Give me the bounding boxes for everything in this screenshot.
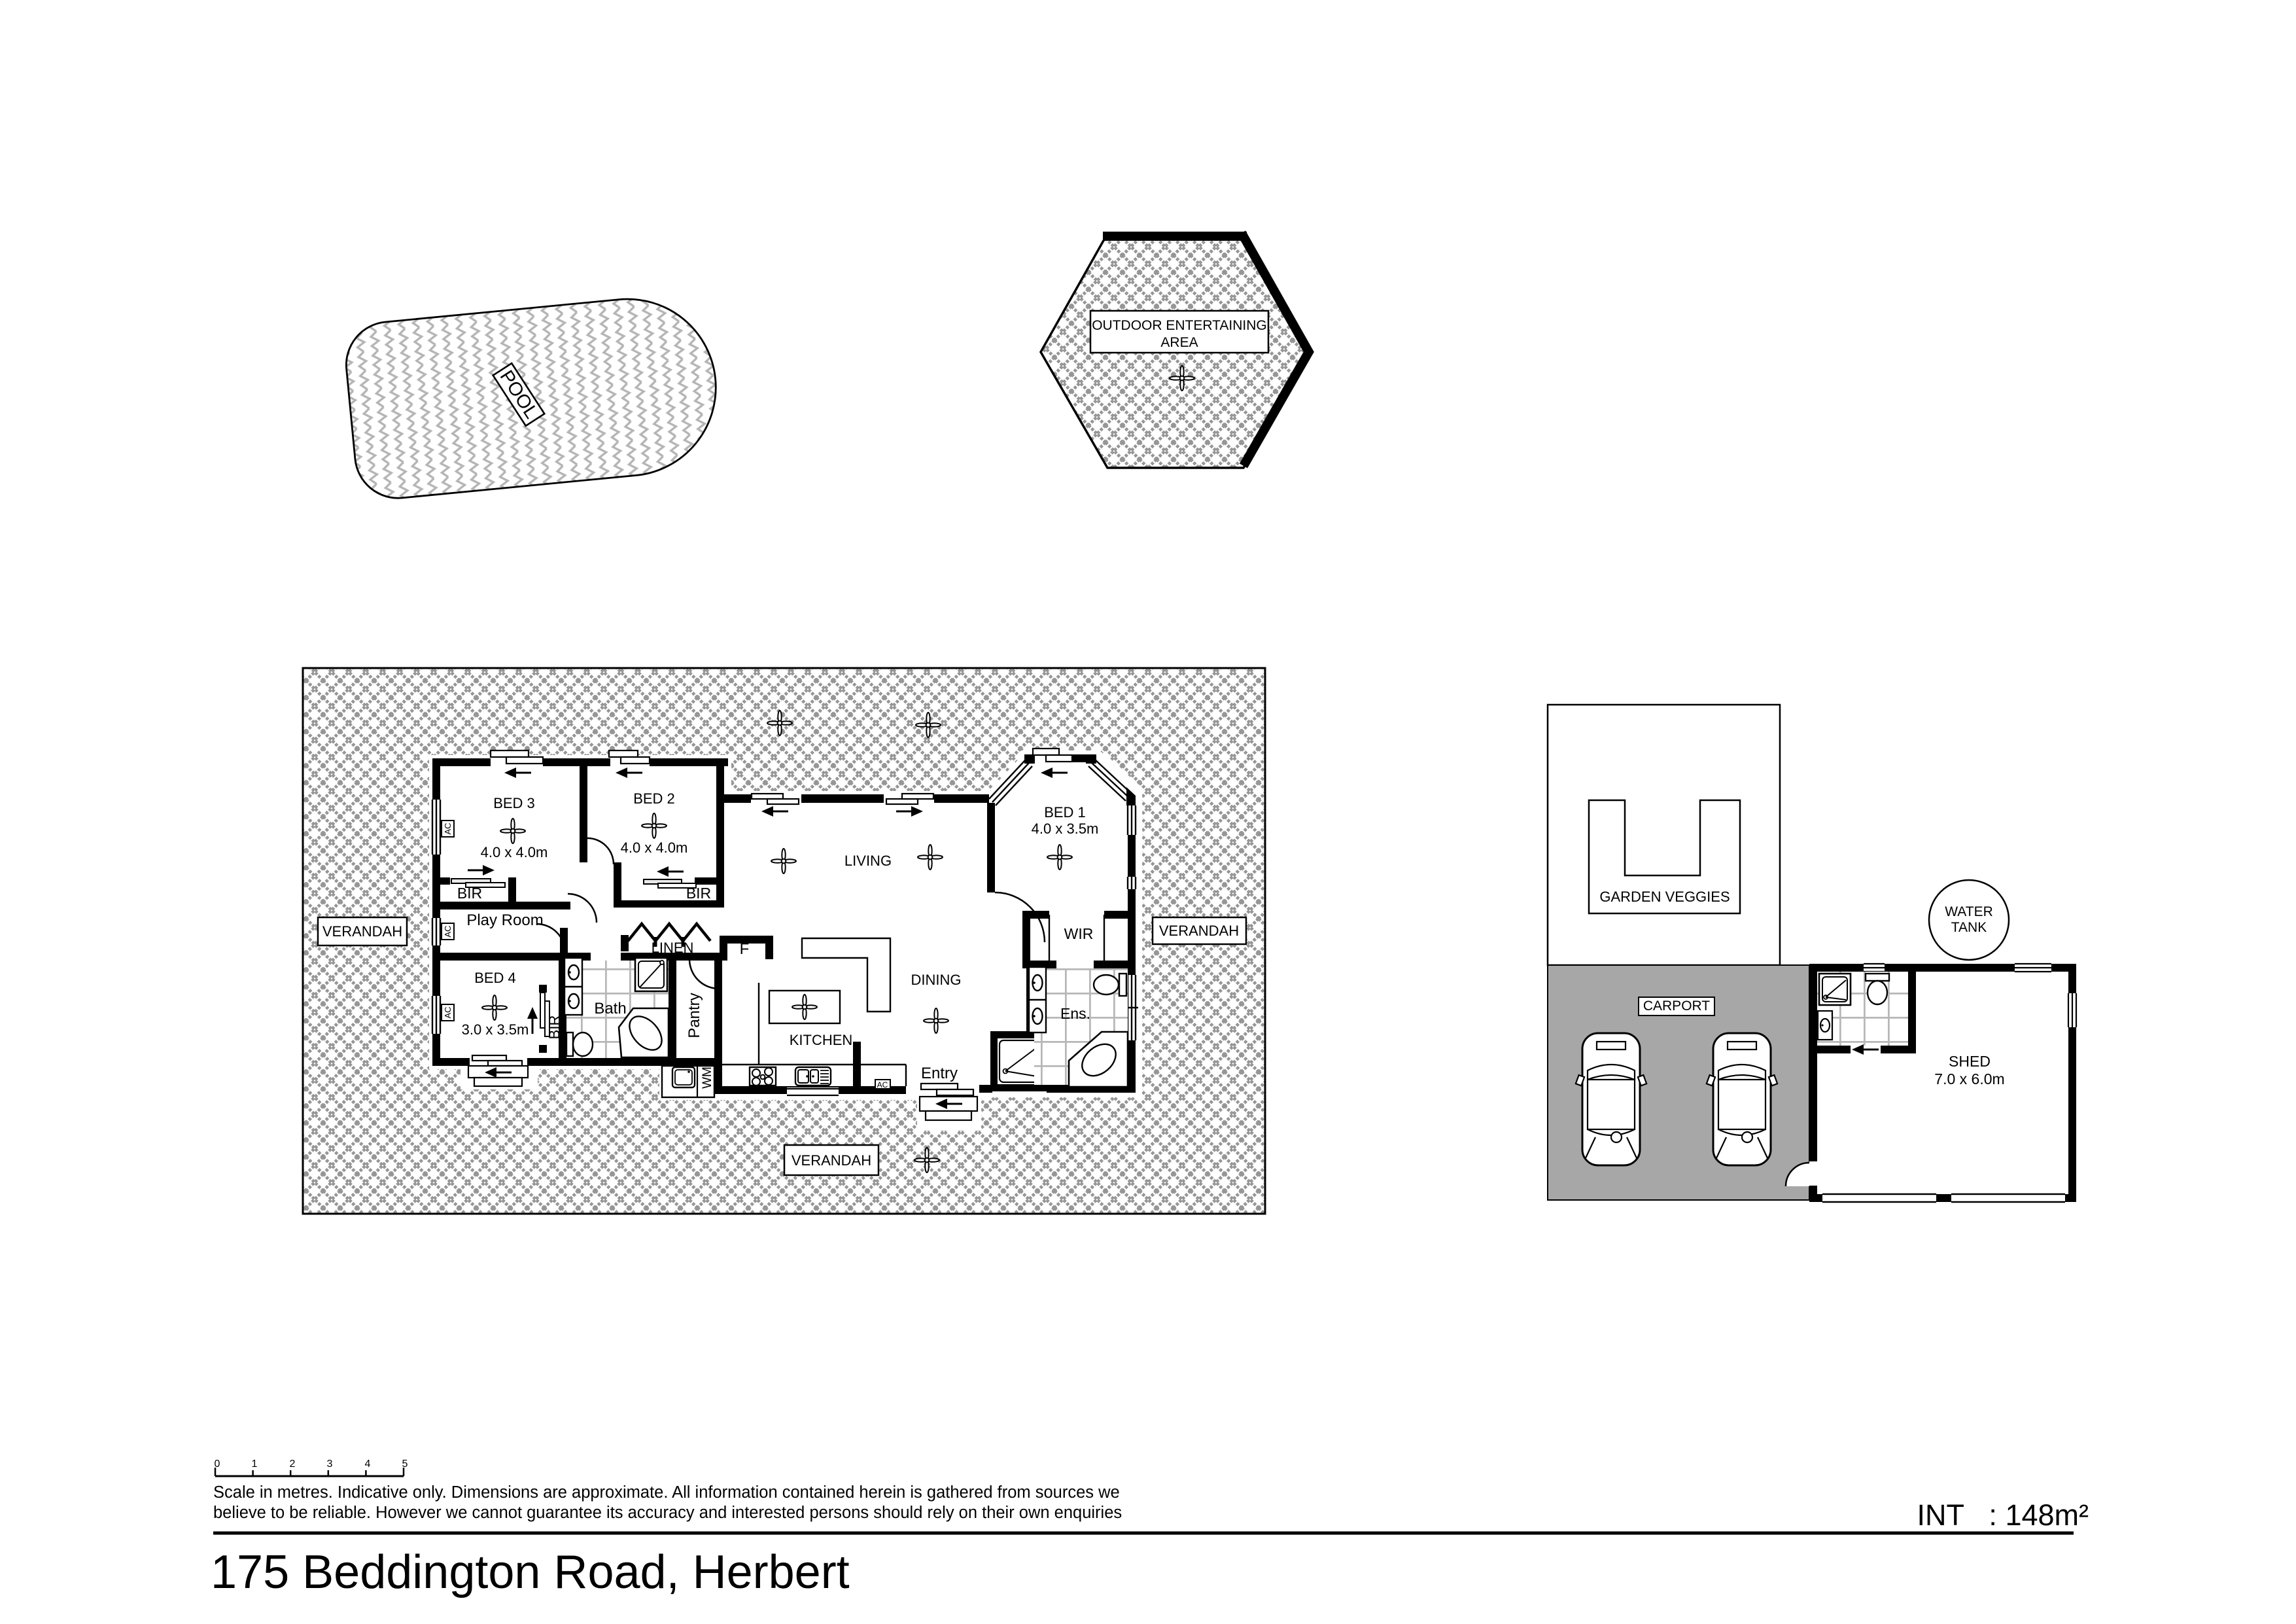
svg-text:TANK: TANK xyxy=(1951,920,1987,935)
svg-text:AC: AC xyxy=(443,1006,453,1018)
svg-text:Bath: Bath xyxy=(594,1000,626,1017)
svg-text:3: 3 xyxy=(327,1458,333,1470)
svg-text:3.0 x 3.5m: 3.0 x 3.5m xyxy=(462,1021,529,1038)
svg-text:175 Beddington Road, Herbert: 175 Beddington Road, Herbert xyxy=(211,1546,850,1598)
svg-text:Play Room: Play Room xyxy=(466,911,543,929)
svg-text:WM: WM xyxy=(701,1067,714,1089)
svg-text:4: 4 xyxy=(365,1458,371,1470)
svg-text:Ens.: Ens. xyxy=(1060,1005,1090,1022)
svg-text:BED 3: BED 3 xyxy=(493,795,535,811)
svg-text:BIR: BIR xyxy=(686,885,711,902)
svg-text:4.0 x 3.5m: 4.0 x 3.5m xyxy=(1032,821,1099,837)
svg-text:OUTDOOR ENTERTAINING: OUTDOOR ENTERTAINING xyxy=(1092,318,1267,333)
svg-text:WATER: WATER xyxy=(1945,904,1993,919)
svg-text:Entry: Entry xyxy=(921,1065,958,1082)
svg-text:BED 2: BED 2 xyxy=(633,790,675,807)
svg-text:5: 5 xyxy=(402,1458,408,1470)
svg-text:0: 0 xyxy=(215,1458,220,1470)
svg-text:4.0 x 4.0m: 4.0 x 4.0m xyxy=(481,844,548,860)
svg-text:BIR: BIR xyxy=(457,885,482,902)
svg-text:LIVING: LIVING xyxy=(844,853,892,869)
svg-text:2: 2 xyxy=(290,1458,296,1470)
svg-text:AREA: AREA xyxy=(1160,335,1198,350)
svg-text:believe to be reliable. Howeve: believe to be reliable. However we canno… xyxy=(213,1504,1122,1522)
svg-text:AC: AC xyxy=(877,1080,888,1089)
svg-text:BED 1: BED 1 xyxy=(1044,804,1086,821)
svg-text:WIR: WIR xyxy=(1064,925,1094,942)
svg-text:INT : 148m²: INT : 148m² xyxy=(1917,1498,2089,1532)
svg-text:VERANDAH: VERANDAH xyxy=(791,1152,871,1169)
svg-text:1: 1 xyxy=(252,1458,258,1470)
svg-text:SHED: SHED xyxy=(1949,1053,1991,1070)
svg-text:VERANDAH: VERANDAH xyxy=(322,923,402,940)
svg-text:BIR: BIR xyxy=(546,1015,563,1040)
svg-text:AC: AC xyxy=(443,925,453,937)
svg-text:Scale in metres. Indicative on: Scale in metres. Indicative only. Dimens… xyxy=(213,1483,1120,1502)
svg-text:Pantry: Pantry xyxy=(686,993,703,1038)
svg-text:GARDEN VEGGIES: GARDEN VEGGIES xyxy=(1599,889,1730,905)
svg-text:AC: AC xyxy=(443,822,453,834)
svg-text:DINING: DINING xyxy=(911,972,962,988)
svg-text:KITCHEN: KITCHEN xyxy=(790,1032,853,1048)
svg-text:4.0 x 4.0m: 4.0 x 4.0m xyxy=(621,839,688,856)
svg-text:CARPORT: CARPORT xyxy=(1643,998,1710,1014)
svg-text:BED 4: BED 4 xyxy=(474,970,516,986)
svg-text:VERANDAH: VERANDAH xyxy=(1159,923,1239,939)
svg-text:F: F xyxy=(740,940,750,958)
svg-text:7.0 x 6.0m: 7.0 x 6.0m xyxy=(1934,1070,2004,1087)
